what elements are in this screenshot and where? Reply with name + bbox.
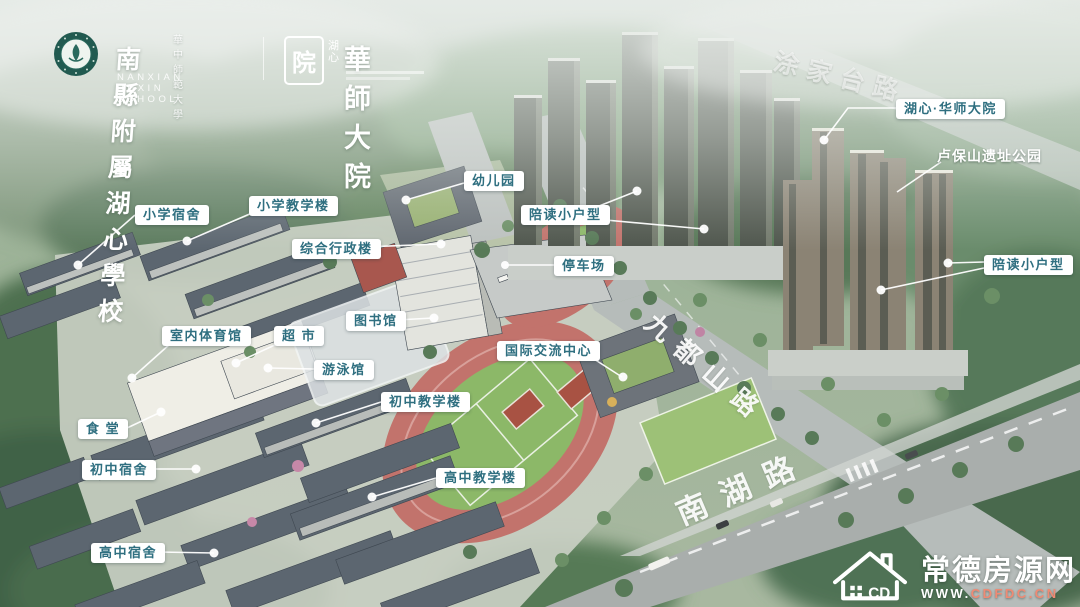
school-name-english: NANXIAN HUXIN SCHOOL xyxy=(117,72,184,105)
school-emblem-icon xyxy=(52,30,100,78)
brand-name: 華師大院 xyxy=(344,38,373,194)
watermark-url: WWW.CDFDC.CN xyxy=(921,586,1059,601)
label-junior-dorm: 初中宿舍 xyxy=(82,460,156,480)
site-watermark: CD 常德房源网 WWW.CDFDC.CN xyxy=(825,549,1076,601)
label-junior-teaching: 初中教学楼 xyxy=(381,392,470,412)
label-kindergarten: 幼儿园 xyxy=(464,171,524,191)
label-intl-exchange-center: 国际交流中心 xyxy=(497,341,600,361)
label-parking-lot: 停车场 xyxy=(554,256,614,276)
brand-tagline-line1 xyxy=(346,71,424,74)
brand-prefix-huxin: 湖心 xyxy=(327,40,340,64)
label-library: 图书馆 xyxy=(346,311,406,331)
svg-text:CD: CD xyxy=(868,585,890,601)
label-huxin-compound: 湖心·华师大院 xyxy=(896,99,1005,119)
brand-tagline-line2 xyxy=(346,77,410,80)
house-logo-icon: CD xyxy=(825,549,915,601)
watermark-site-name: 常德房源网 xyxy=(921,556,1076,586)
label-primary-dorm: 小学宿舍 xyxy=(135,205,209,225)
label-admin-building: 综合行政楼 xyxy=(292,239,381,259)
label-senior-teaching: 高中教学楼 xyxy=(436,468,525,488)
label-supermarket: 超 市 xyxy=(274,326,324,346)
label-canteen: 食 堂 xyxy=(78,419,128,439)
label-primary-teaching: 小学教学楼 xyxy=(249,196,338,216)
label-swimming-hall: 游泳馆 xyxy=(314,360,374,380)
label-lubaoshan-park: 卢保山遗址公园 xyxy=(937,148,1042,164)
label-study-apartments-left: 陪读小户型 xyxy=(521,205,610,225)
label-study-apartments-right: 陪读小户型 xyxy=(984,255,1073,275)
aerial-masterplan-rendering: 涂家台路 九都山路 南湖路 小学宿舍 小学教学楼 幼儿园 综合行政楼 陪读小户型… xyxy=(0,0,1080,607)
brand-divider xyxy=(263,37,264,80)
label-senior-dorm: 高中宿舍 xyxy=(91,543,165,563)
yuan-seal-icon: 院 xyxy=(284,36,324,85)
label-indoor-gym: 室内体育馆 xyxy=(162,326,251,346)
